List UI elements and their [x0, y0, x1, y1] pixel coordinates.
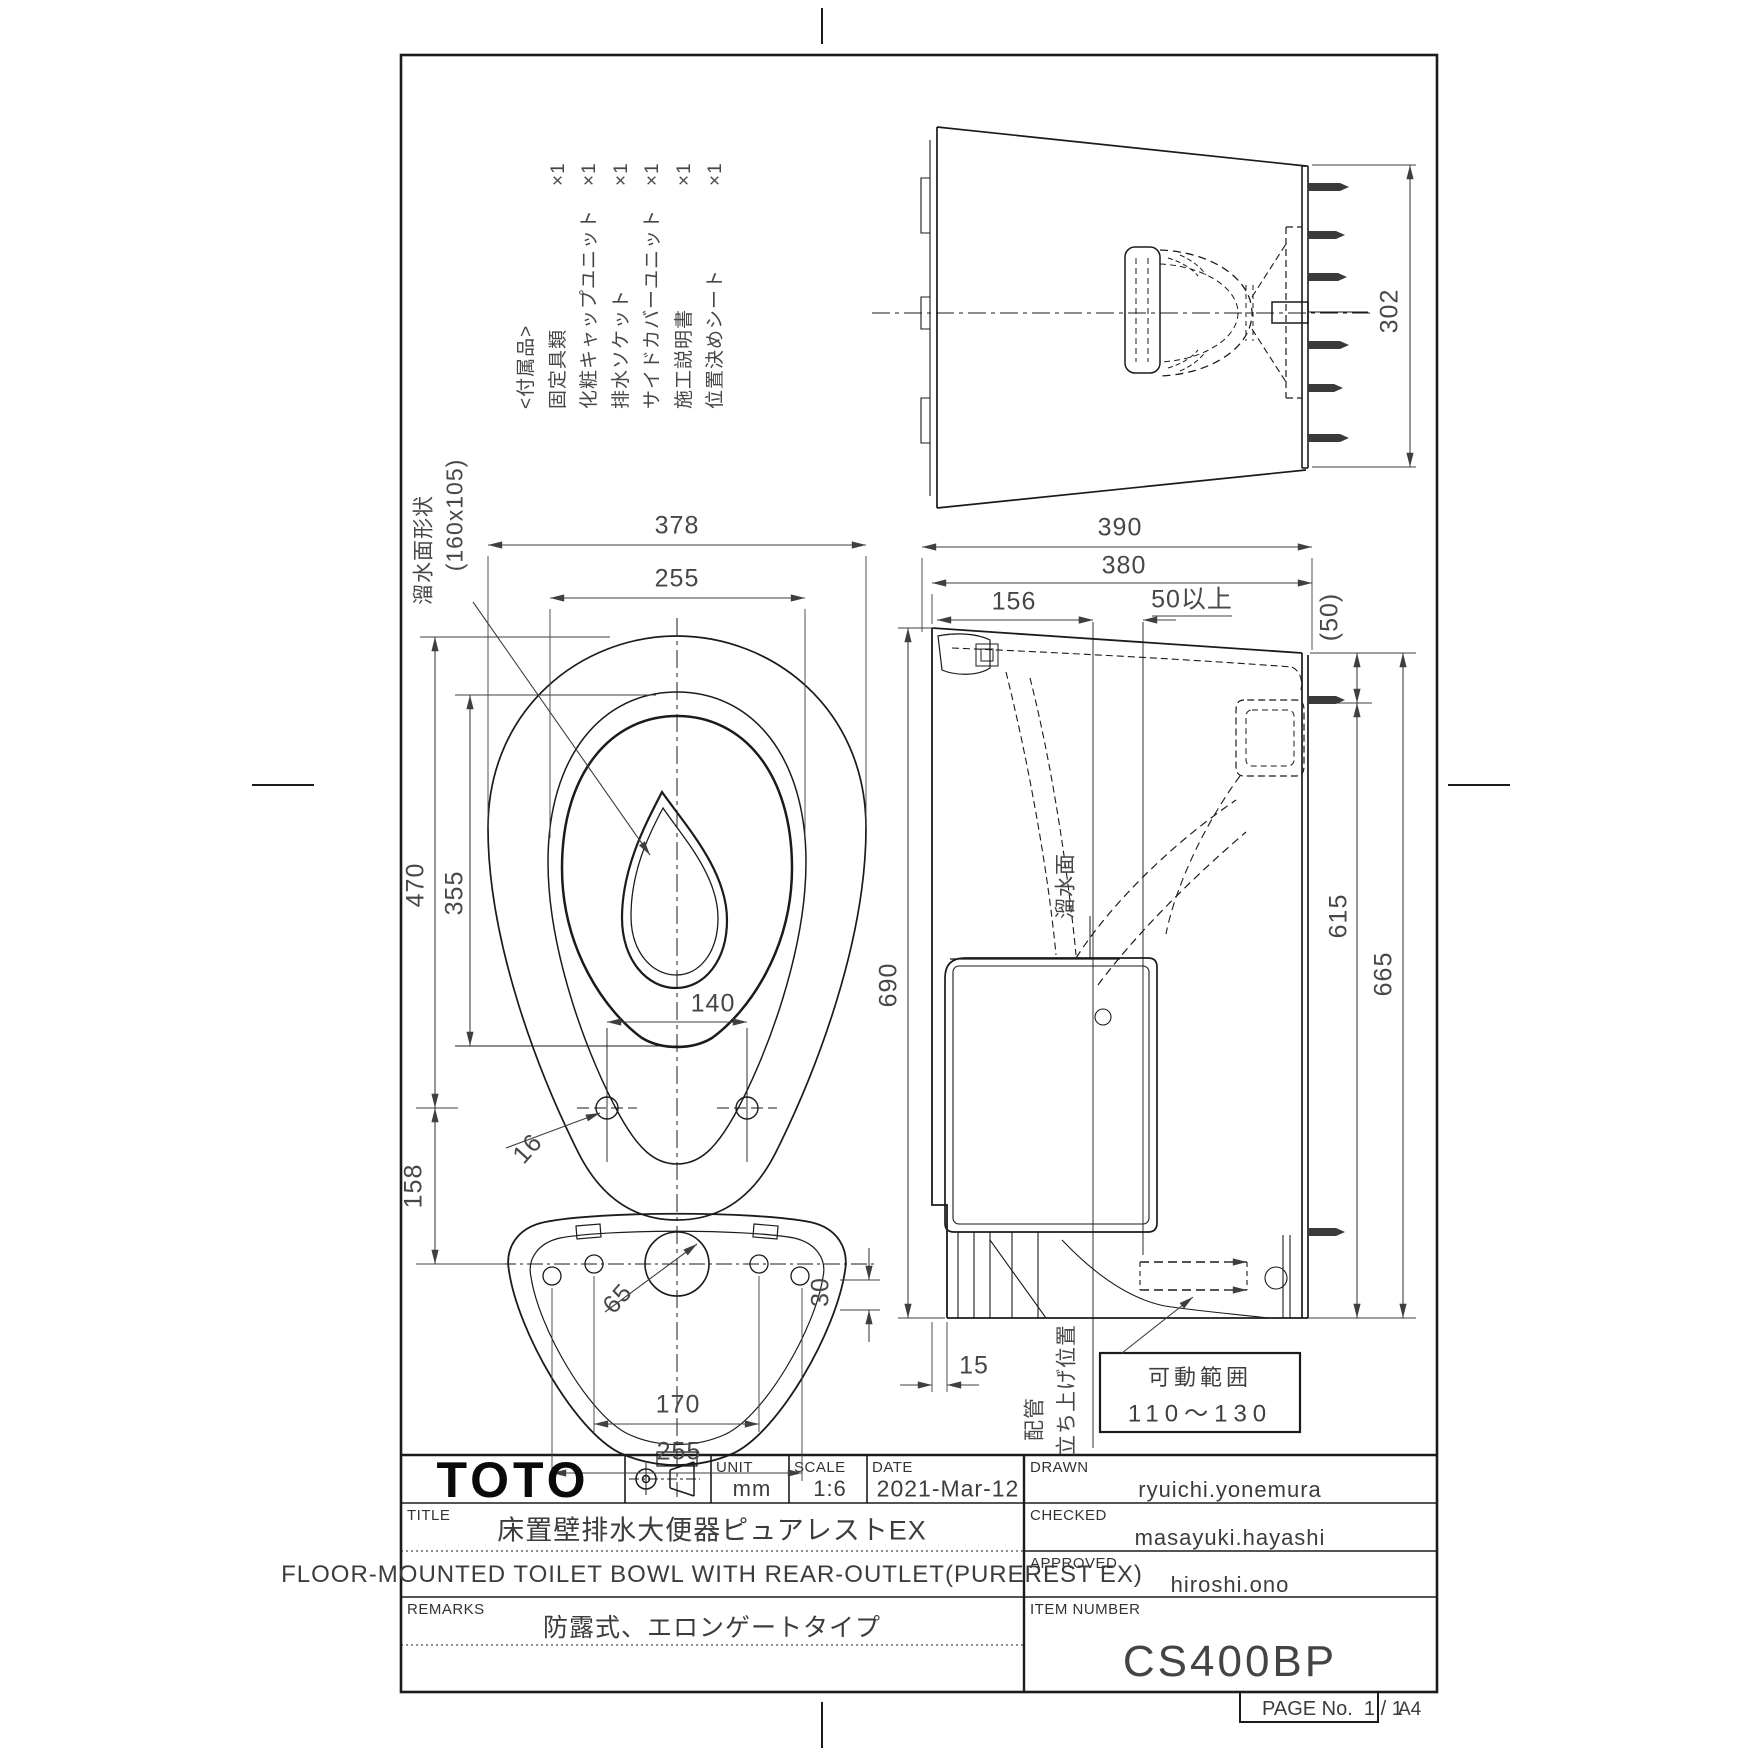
- dim-label-side-height-690: 690: [877, 963, 902, 1008]
- dim-label-plan-rim-255: 255: [655, 567, 700, 592]
- parts-list-item: 排水ソケット: [612, 289, 631, 409]
- dim-label-ann-water-surface: 溜水面: [1056, 853, 1077, 919]
- unit-label: UNIT: [716, 1459, 753, 1476]
- dim-label-plan-30: 30: [809, 1277, 834, 1307]
- dim-label-side-615: 615: [1327, 894, 1352, 939]
- parts-list-qty: ×1: [706, 162, 725, 186]
- dim-label-side-depth-380: 380: [1102, 554, 1147, 579]
- dim-label-plan-158: 158: [402, 1164, 427, 1209]
- dim-label-plan-width-378: 378: [655, 514, 700, 539]
- projection-symbol-icon: [629, 1462, 700, 1496]
- parts-list-qty: ×1: [643, 162, 662, 186]
- dim-label-plan-length-470: 470: [404, 863, 429, 908]
- dim-label-plan-pitch-255: 255: [657, 1440, 702, 1465]
- unit-value: mm: [733, 1476, 772, 1502]
- approved-label: APPROVED: [1030, 1555, 1117, 1572]
- parts-list-item: 施工説明書: [675, 309, 694, 409]
- scale-value: 1:6: [813, 1476, 847, 1502]
- dim-label-side-50min: 50以上: [1151, 588, 1233, 613]
- parts-list-qty: ×1: [675, 162, 694, 186]
- date-value: 2021-Mar-12: [877, 1476, 1020, 1503]
- scale-label: SCALE: [794, 1459, 846, 1476]
- checked-value: masayuki.hayashi: [1135, 1525, 1326, 1551]
- plan-view: [455, 618, 878, 1497]
- item-number-label: ITEM NUMBER: [1030, 1601, 1141, 1618]
- sheet-frame: [401, 55, 1437, 1692]
- date-label: DATE: [872, 1459, 913, 1476]
- dim-label-side-156: 156: [992, 590, 1037, 615]
- rear-view: [872, 127, 1372, 508]
- parts-list-item: 化粧キャップユニット: [580, 209, 599, 409]
- parts-list-qty: ×1: [612, 162, 631, 186]
- title-japanese: 床置壁排水大便器ピュアレストEX: [497, 1509, 926, 1548]
- parts-list-item: 固定具類: [549, 329, 568, 409]
- parts-list-item: 位置決めシート: [706, 269, 725, 409]
- dim-label-ann-water-shape-2: (160x105): [444, 459, 467, 572]
- drawn-label: DRAWN: [1030, 1459, 1089, 1476]
- item-number-value: CS400BP: [1123, 1637, 1337, 1687]
- dim-label-side-665: 665: [1372, 952, 1397, 997]
- parts-list-qty: ×1: [549, 162, 568, 186]
- side-view: [932, 622, 1345, 1448]
- toto-logo: TOTO: [436, 1451, 589, 1509]
- page-number: PAGE No. 1 / 1: [1262, 1698, 1403, 1721]
- dim-label-plan-355: 355: [443, 871, 468, 916]
- dim-label-rear-height-302: 302: [1378, 289, 1403, 334]
- parts-list-qty: ×1: [580, 162, 599, 186]
- remarks-value: 防露式、エロンゲートタイプ: [543, 1608, 881, 1644]
- movable-range-title: 可動範囲: [1148, 1360, 1252, 1392]
- paper-size: A4: [1398, 1699, 1421, 1721]
- title-english: FLOOR-MOUNTED TOILET BOWL WITH REAR-OUTL…: [281, 1561, 1143, 1589]
- dim-label-side-50paren: (50): [1318, 593, 1343, 641]
- approved-value: hiroshi.ono: [1171, 1572, 1290, 1598]
- dim-label-ann-water-shape-1: 溜水面形状: [414, 495, 435, 605]
- movable-range-value: 110〜130: [1128, 1394, 1272, 1429]
- parts-list-header: <付属品>: [517, 325, 536, 409]
- dim-label-side-depth-390: 390: [1098, 516, 1143, 541]
- title-label: TITLE: [407, 1507, 450, 1524]
- parts-list-item: サイドカバーユニット: [643, 209, 662, 409]
- dim-label-ann-pipe: 配管: [1025, 1397, 1046, 1441]
- dim-label-plan-pitch-170: 170: [656, 1393, 701, 1418]
- checked-label: CHECKED: [1030, 1507, 1107, 1524]
- dim-label-side-15: 15: [959, 1354, 989, 1379]
- drawing-sheet: 3782554703551581401665170255303903801565…: [0, 0, 1754, 1754]
- remarks-label: REMARKS: [407, 1601, 485, 1618]
- dim-label-ann-pipe-riser: 立ち上げ位置: [1057, 1324, 1078, 1456]
- drawn-value: ryuichi.yonemura: [1138, 1477, 1322, 1503]
- dim-label-plan-hole-pitch-140: 140: [691, 992, 736, 1017]
